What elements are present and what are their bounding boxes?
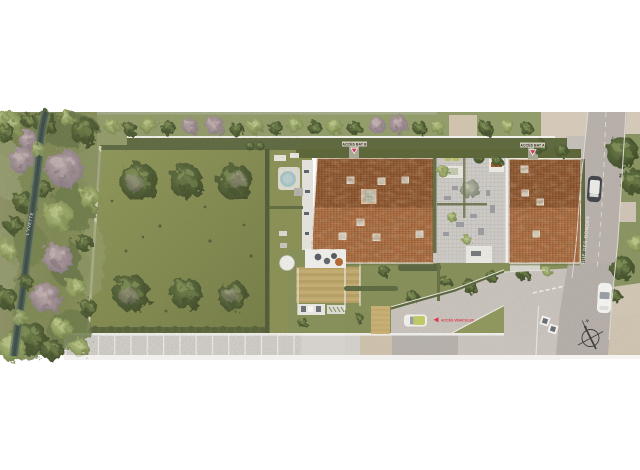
svg-text:ACCÈS BAT B: ACCÈS BAT B: [342, 142, 367, 147]
svg-text:ACCÈS BAT A: ACCÈS BAT A: [520, 143, 545, 148]
